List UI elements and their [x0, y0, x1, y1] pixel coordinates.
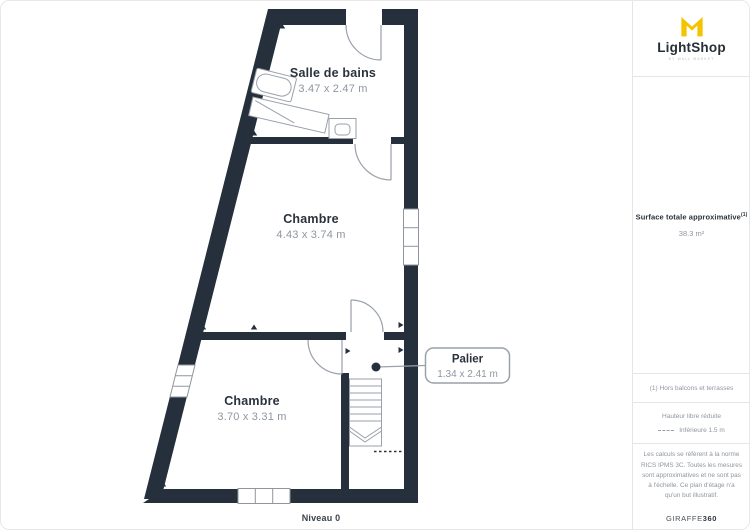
room-label-bedroom-1: Chambre — [283, 212, 339, 226]
wall-middle-divider-stub — [384, 332, 404, 340]
legend-item-text: Inférieure 1.5 m — [679, 427, 725, 434]
giraffe360-attribution: GIRAFFE360 — [666, 514, 717, 523]
giraffe-brand-text: GIRAFFE — [666, 514, 703, 523]
staircase — [350, 379, 382, 446]
floor-plan-drawing: Palier 1.34 x 2.41 m Salle de bains 3.47… — [1, 1, 633, 530]
palier-marker-dot — [372, 363, 381, 372]
level-label: Niveau 0 — [302, 513, 341, 523]
palier-callout: Palier 1.34 x 2.41 m — [426, 348, 510, 383]
room-dims-bedroom-2: 3.70 x 3.31 m — [217, 411, 286, 423]
giraffe-360-text: 360 — [703, 514, 717, 523]
toilet-icon — [329, 119, 356, 139]
window-right-wall — [404, 209, 419, 265]
room-dims-bedroom-1: 4.43 x 3.74 m — [276, 229, 345, 241]
wall-stair-partition — [341, 373, 349, 491]
shower-tray-icon — [249, 97, 329, 133]
surface-value: 38.3 m² — [679, 229, 704, 238]
wall-top-right — [382, 9, 418, 25]
room-dims-palier: 1.34 x 2.41 m — [437, 369, 498, 380]
legend-row: Inférieure 1.5 m — [658, 427, 725, 434]
surface-label-text: Surface totale approximative — [636, 213, 741, 222]
door-entry-top — [346, 25, 381, 60]
dashed-line-icon — [658, 430, 674, 431]
surface-section: Surface totale approximative(1) 38.3 m² — [633, 77, 750, 374]
brand-section: LightShop BY WALL MARKET — [633, 1, 750, 77]
legend-title: Hauteur libre réduite — [662, 413, 721, 420]
door-middle-bedroom — [351, 300, 383, 332]
sidebar: LightShop BY WALL MARKET Surface totale … — [632, 1, 750, 529]
floorplan-page: Palier 1.34 x 2.41 m Salle de bains 3.47… — [0, 0, 750, 530]
room-dims-bathroom: 3.47 x 2.47 m — [298, 83, 367, 95]
door-lower-bedroom — [308, 340, 342, 374]
room-label-bedroom-2: Chambre — [224, 394, 280, 408]
surface-label: Surface totale approximative(1) — [636, 212, 748, 222]
footnote-text: (1) Hors balcons et terrasses — [650, 385, 733, 392]
window-bottom-wall — [238, 489, 290, 504]
disclaimer-text: Les calculs se réfèrent à la norme RICS … — [641, 450, 743, 501]
brand-name: LightShop — [657, 40, 726, 55]
footnote-section: (1) Hors balcons et terrasses — [633, 374, 750, 403]
wall-top-left — [268, 9, 346, 25]
wall-middle-divider — [199, 332, 346, 340]
lightshop-logo-icon — [681, 17, 703, 37]
door-bathroom — [355, 144, 391, 180]
window-left-wall — [170, 365, 195, 397]
brand-tagline: BY WALL MARKET — [669, 57, 715, 61]
surface-superscript: (1) — [741, 212, 747, 218]
disclaimer-section: Les calculs se réfèrent à la norme RICS … — [633, 444, 750, 529]
legend-section: Hauteur libre réduite Inférieure 1.5 m — [633, 403, 750, 444]
room-label-palier: Palier — [452, 354, 484, 366]
wall-bathroom-divider-stub — [391, 137, 404, 144]
room-label-bathroom: Salle de bains — [290, 66, 376, 80]
